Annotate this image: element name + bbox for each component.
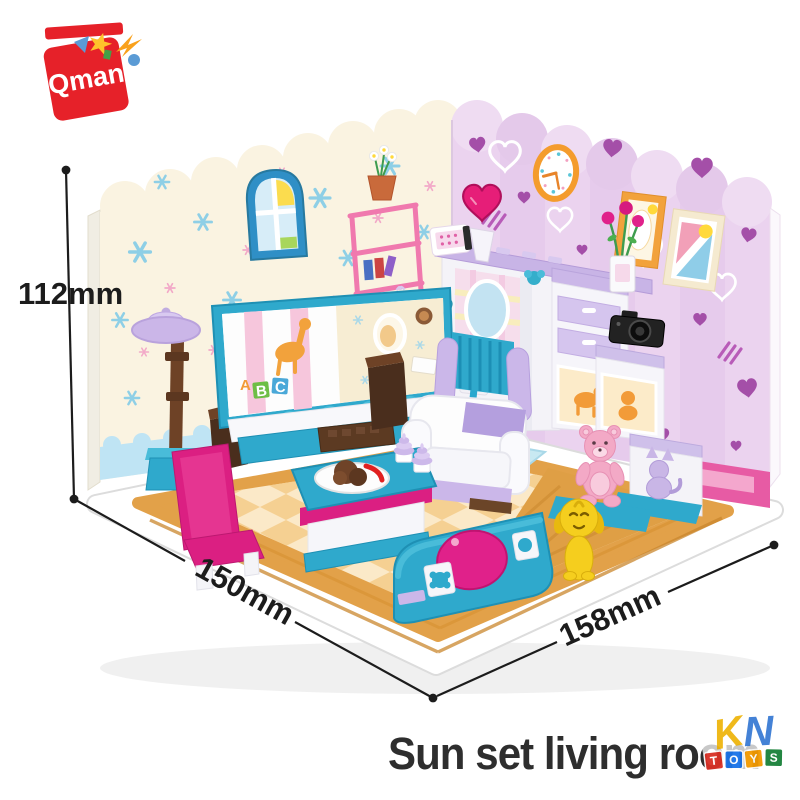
product-image: A B C [0,0,800,800]
scene-canvas: A B C [0,0,800,800]
block-s: S [770,751,778,765]
qman-logo: Qman [42,22,142,122]
tv-letter-a: A [240,377,251,394]
arched-window [245,168,307,260]
tv-letter-c: C [274,379,286,397]
tv-letter-b: B [255,382,268,400]
logo-box: Qman [42,36,130,122]
picture-frame-2 [663,209,725,291]
height-label: 112mm [18,276,123,311]
radio [429,224,472,257]
room-scene: A B C [88,100,780,694]
block-o: O [729,753,738,767]
block-y: Y [749,751,758,766]
